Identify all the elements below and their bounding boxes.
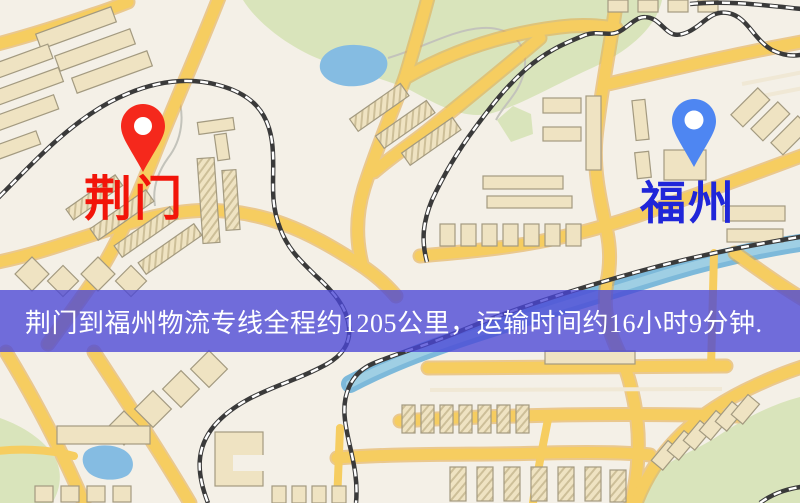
destination-city-label: 福州 xyxy=(640,180,736,226)
route-info-banner: 荆门到福州物流专线全程约1205公里，运输时间约16小时9分钟. xyxy=(0,290,800,352)
map-canvas xyxy=(0,0,800,503)
map-screenshot: 荆门 福州 荆门到福州物流专线全程约1205公里，运输时间约16小时9分钟. xyxy=(0,0,800,503)
destination-pin-icon[interactable] xyxy=(666,95,722,171)
origin-city-label: 荆门 xyxy=(84,176,184,224)
route-info-text: 荆门到福州物流专线全程约1205公里，运输时间约16小时9分钟. xyxy=(0,303,763,340)
origin-pin-icon[interactable] xyxy=(115,100,171,176)
